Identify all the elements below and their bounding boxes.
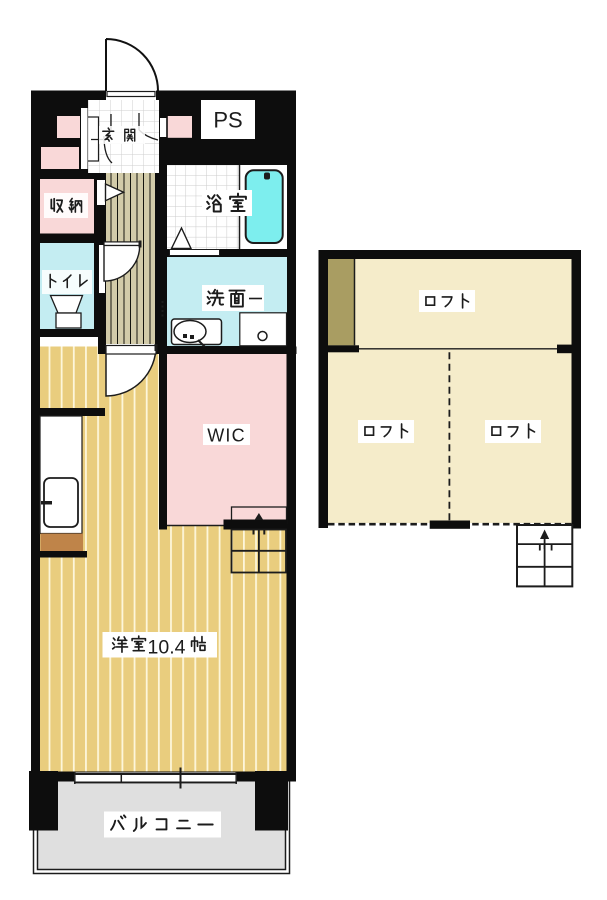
svg-text:10.4: 10.4	[148, 637, 186, 659]
svg-text:WIC: WIC	[207, 426, 246, 446]
svg-text:PS: PS	[213, 108, 242, 133]
